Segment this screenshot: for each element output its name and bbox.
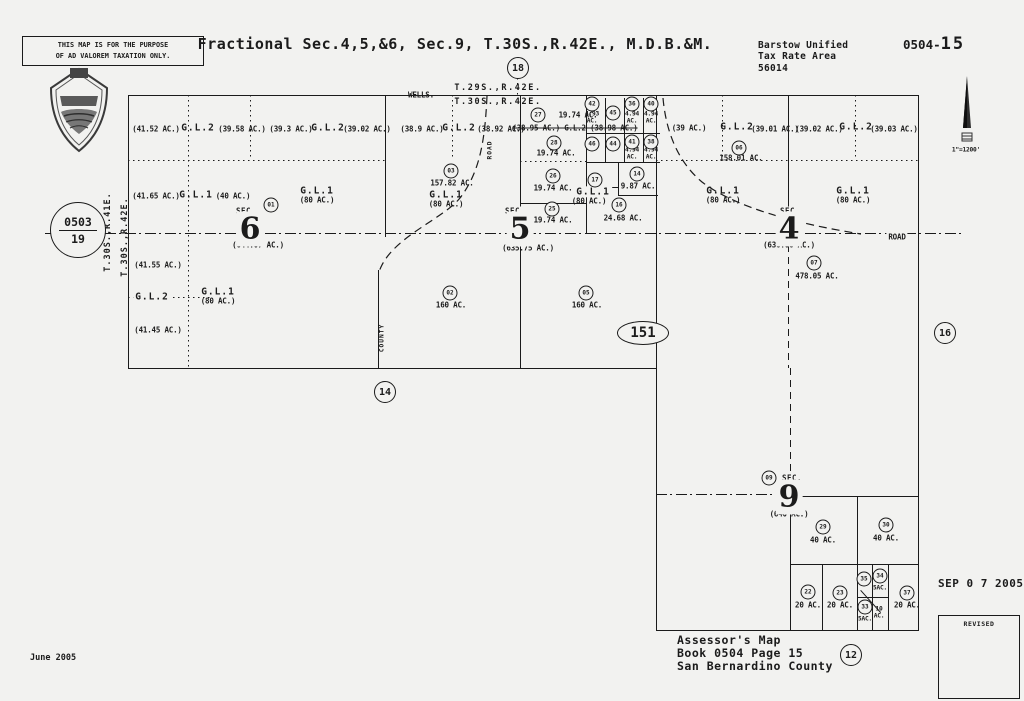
map-label: (80 AC.) — [300, 196, 335, 205]
map-label: (39.03 AC.) — [870, 125, 917, 134]
map-label: ROAD — [886, 233, 907, 242]
map-label: (39.01 AC.) — [751, 125, 798, 134]
parcel-circle-05: 05 — [579, 286, 594, 301]
adjacent-book: 0503 — [59, 215, 97, 231]
parcel-circle-23: 23 — [833, 586, 848, 601]
map-label: 160 AC. — [436, 301, 466, 310]
parcel-circle-29: 29 — [816, 520, 831, 535]
assessor-footer-block: Assessor's Map Book 0504 Page 15 San Ber… — [677, 634, 833, 674]
map-label: 20 AC. — [827, 601, 853, 610]
map-label: 19.74 AC. — [534, 184, 573, 193]
map-label: 5AC. — [873, 584, 887, 591]
parcel-circle-27: 27 — [531, 108, 546, 123]
map-label: 160 AC. — [572, 301, 602, 310]
north-arrow-icon — [952, 76, 982, 148]
map-label: 6 — [237, 212, 264, 247]
map-label: COUNTY — [378, 324, 385, 352]
parcel-circle-34: 34 — [873, 569, 888, 584]
map-label: (41.52 AC.) — [132, 125, 179, 134]
map-label: (39.3 AC.) — [269, 125, 312, 134]
parcel-circle-44: 44 — [606, 137, 621, 152]
map-label: 10 AC. — [874, 606, 885, 621]
map-label: (80 AC.) — [429, 200, 464, 209]
parcel-circle-14: 14 — [374, 381, 396, 403]
map-label: G.L.2 — [311, 122, 345, 133]
parcel-circle-03: 03 — [444, 164, 459, 179]
disclaimer-box: THIS MAP IS FOR THE PURPOSE OF AD VALORE… — [22, 36, 204, 66]
parcel-circle-42: 42 — [585, 97, 600, 112]
adjacent-page: 19 — [71, 231, 85, 246]
map-label: T.29S.,R.42E. — [454, 83, 541, 93]
tax-rate-area-block: Barstow Unified Tax Rate Area 56014 — [758, 40, 848, 74]
map-label: T.30S.,R.42E. — [454, 97, 541, 107]
parcel-circle-06: 06 — [732, 141, 747, 156]
map-label: 4.93 AC. — [585, 111, 599, 126]
parcel-circle-37: 37 — [900, 586, 915, 601]
parcel-circle-26: 26 — [546, 169, 561, 184]
parcel-circle-18: 18 — [507, 57, 529, 79]
map-label: WELLS. — [408, 91, 434, 100]
disclaimer-line1: THIS MAP IS FOR THE PURPOSE — [58, 40, 169, 51]
revised-box: REVISED — [938, 615, 1020, 699]
highway-151-ellipse: 151 — [617, 321, 669, 345]
map-label: (39 AC.) — [672, 124, 707, 133]
page-number: 15 — [941, 34, 965, 54]
map-label: 24.68 AC. — [604, 214, 643, 223]
map-label: (41.65 AC.) — [132, 192, 179, 201]
disclaimer-line2: OF AD VALOREM TAXATION ONLY. — [56, 51, 171, 62]
parcel-circle-45: 45 — [606, 106, 621, 121]
map-label: (80 AC.) — [201, 297, 236, 306]
parcel-circle-35: 35 — [857, 572, 872, 587]
parcel-circle-38: 38 — [644, 135, 659, 150]
map-label: 4.94 AC. — [625, 111, 639, 126]
parcel-circle-12: 12 — [840, 644, 862, 666]
parcel-circle-41: 41 — [625, 135, 640, 150]
map-label: (38.9 AC.) — [400, 125, 443, 134]
map-label: 9 — [776, 480, 803, 515]
map-label: G.L.1 — [179, 189, 213, 200]
parcel-circle-46: 46 — [585, 137, 600, 152]
map-label: 40 AC. — [873, 534, 899, 543]
map-label: G.L.2 — [181, 122, 215, 133]
map-label: (39.02 AC.) — [343, 125, 390, 134]
map-label: 20 AC. — [795, 601, 821, 610]
book-prefix: 0504- — [903, 34, 941, 52]
map-label: 4 — [776, 212, 803, 247]
parcel-circle-16: 16 — [934, 322, 956, 344]
tax-rate-area-label: Tax Rate Area — [758, 51, 848, 62]
map-label: (80 AC.) — [706, 196, 741, 205]
assessor-line3: San Bernardino County — [677, 660, 833, 673]
map-label: 4.94 AC. — [644, 111, 658, 126]
road-curve-sec4 — [663, 98, 861, 234]
tax-rate-area-code: 56014 — [758, 63, 848, 74]
map-label: (40 AC.) — [216, 192, 251, 201]
map-label: 5AC. — [858, 615, 872, 622]
map-label: ROAD — [486, 141, 493, 160]
parcel-circle-07: 07 — [807, 256, 822, 271]
revised-label: REVISED — [964, 620, 995, 628]
parcel-circle-17: 17 — [588, 173, 603, 188]
map-label: G.L.2 — [133, 291, 171, 302]
district-name: Barstow Unified — [758, 40, 848, 51]
parcel-circle-01: 01 — [264, 198, 279, 213]
map-date: June 2005 — [30, 653, 76, 663]
map-label: (38.95 AC.) G.L.2 (38.98 AC.) — [512, 124, 637, 133]
map-label: 40 AC. — [810, 536, 836, 545]
map-label: (39.02 AC.) — [795, 125, 842, 134]
county-seal-icon — [48, 66, 110, 154]
map-label: G.L.1 — [574, 186, 612, 197]
parcel-circle-16: 16 — [612, 198, 627, 213]
parcel-circle-36: 36 — [625, 97, 640, 112]
parcel-circle-40: 40 — [644, 97, 659, 112]
map-label: 157.82 AC. — [430, 179, 473, 188]
map-label: (41.55 AC.) — [134, 261, 181, 270]
date-stamp: SEP 0 7 2005 — [938, 577, 1023, 590]
map-label: 5 — [507, 212, 534, 247]
parcel-circle-02: 02 — [443, 286, 458, 301]
map-label: 9.87 AC. — [621, 182, 656, 191]
parcel-circle-30: 30 — [879, 518, 894, 533]
assessor-map-page: { "document": { "disclaimer": ["THIS MAP… — [0, 0, 1024, 701]
map-label: T.30S.,R.42E. — [120, 197, 130, 277]
map-label: G.L.2 — [442, 122, 476, 133]
map-label: (80 AC.) — [572, 197, 607, 206]
map-label: 19.74 AC. — [534, 216, 573, 225]
parcel-circle-25: 25 — [545, 202, 560, 217]
adjacent-sheet-circle: 0503 19 — [50, 202, 106, 258]
parcel-circle-28: 28 — [547, 136, 562, 151]
map-label: G.L.2 — [720, 121, 754, 132]
map-label: 20 AC. — [894, 601, 920, 610]
parcel-circle-33: 33 — [858, 600, 873, 615]
map-title: Fractional Sec.4,5,&6, Sec.9, T.30S.,R.4… — [198, 35, 713, 53]
map-label: 478.05 AC. — [795, 272, 838, 281]
map-label: (80 AC.) — [836, 196, 871, 205]
map-label: (41.45 AC.) — [134, 326, 181, 335]
sheet-number: 0504- 15 — [903, 34, 965, 54]
parcel-circle-22: 22 — [801, 585, 816, 600]
map-label: G.L.2 — [839, 121, 873, 132]
map-label: (39.58 AC.) — [218, 125, 265, 134]
parcel-circle-09: 09 — [762, 471, 777, 486]
parcel-circle-14: 14 — [630, 167, 645, 182]
